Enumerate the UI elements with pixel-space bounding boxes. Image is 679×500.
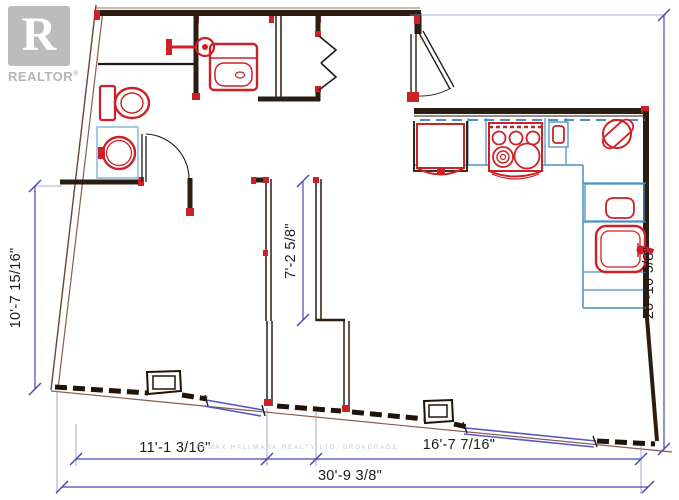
- realtor-logo-wordmark: REALTOR®: [8, 69, 94, 84]
- range-control-icon: [549, 122, 568, 147]
- bifold-closet-door-icon: [319, 36, 336, 90]
- entry-door-icon: [407, 31, 454, 102]
- dimension-shaft: 7'-2 5/8": [283, 175, 309, 326]
- fridge-icon: [414, 121, 467, 175]
- vanity-sink-icon: [97, 127, 138, 178]
- dimension-bottom-overall: 30'-9 3/8": [56, 468, 654, 493]
- dimension-shaft-label: 7'-2 5/8": [283, 223, 299, 279]
- brokerage-watermark: REMAX HALLMARK REALTY LTD. BROKERAGE: [196, 444, 466, 451]
- stove-icon: [489, 123, 542, 179]
- dishwasher-icon: [585, 184, 644, 221]
- realtor-logo: R REALTOR®: [8, 6, 94, 84]
- corner-sink-icon: [600, 117, 636, 151]
- registered-trademark-symbol: ®: [73, 71, 79, 78]
- toilet-icon: [100, 86, 149, 120]
- shower-icon: [166, 38, 214, 56]
- closet-walls: [258, 13, 321, 101]
- bathroom-door-icon: [142, 134, 189, 182]
- shaft-walls: [253, 179, 349, 412]
- dimension-right-label: 20'-10 5/8": [641, 247, 657, 320]
- dimension-left-label: 10'-7 15/16": [8, 248, 24, 329]
- dimension-bottom-overall-label: 30'-9 3/8": [318, 468, 382, 484]
- realtor-logo-mark: R: [8, 6, 70, 66]
- bottom-wall: [55, 387, 655, 444]
- floor-plan-page: R REALTOR® REMAX HALLMARK REALTY LTD. BR…: [0, 0, 679, 500]
- realtor-logo-letter: R: [22, 11, 57, 59]
- bathtub-icon: [210, 44, 257, 90]
- top-wall: [94, 8, 421, 34]
- floor-plan-drawing: 10'-7 15/16" 7'-2 5/8" 20'-10 5/8": [0, 0, 679, 500]
- kitchen-top-wall: [414, 106, 649, 116]
